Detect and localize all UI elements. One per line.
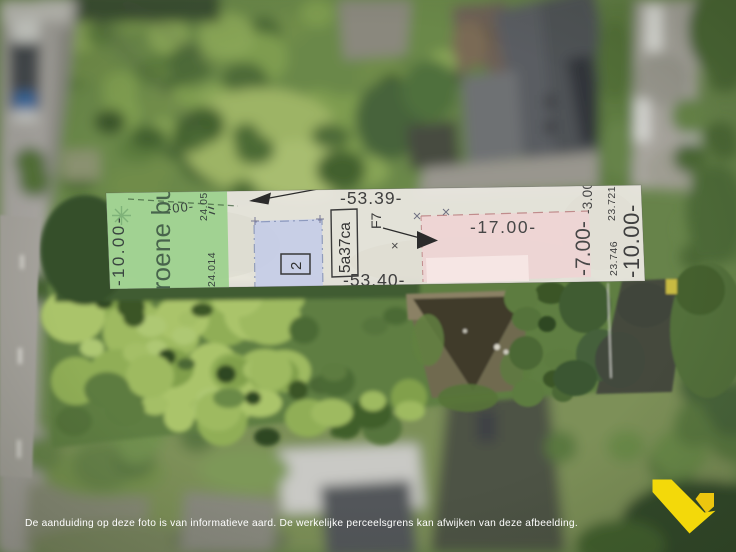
svg-text:De aanduiding op deze foto is: De aanduiding op deze foto is van inform… — [25, 518, 578, 529]
